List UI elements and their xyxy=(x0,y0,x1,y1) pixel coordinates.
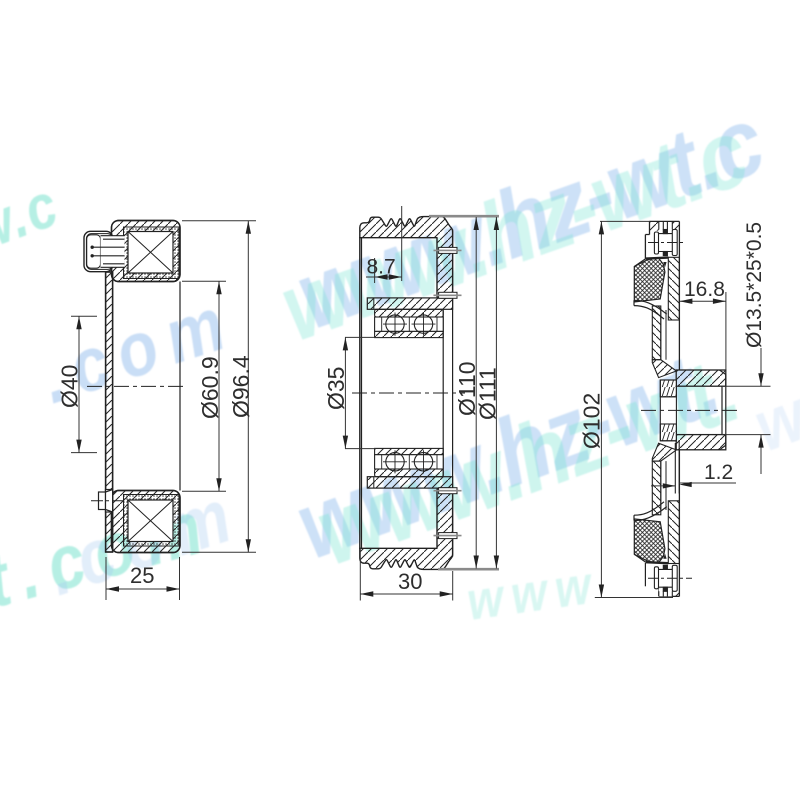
svg-text:Ø13.5*25*0.5: Ø13.5*25*0.5 xyxy=(743,222,766,348)
svg-text:30: 30 xyxy=(398,569,422,594)
svg-text:25: 25 xyxy=(130,563,154,588)
svg-text:Ø40: Ø40 xyxy=(57,365,83,408)
svg-text:16.8: 16.8 xyxy=(684,278,725,301)
svg-text:Ø96.4: Ø96.4 xyxy=(228,355,254,418)
svg-text:8.7: 8.7 xyxy=(367,256,396,279)
svg-text:Ø60.9: Ø60.9 xyxy=(197,356,223,419)
svg-text:Ø111: Ø111 xyxy=(475,367,501,420)
svg-text:Ø102: Ø102 xyxy=(579,393,605,449)
svg-text:Ø35: Ø35 xyxy=(323,367,349,410)
svg-text:1.2: 1.2 xyxy=(704,461,733,484)
